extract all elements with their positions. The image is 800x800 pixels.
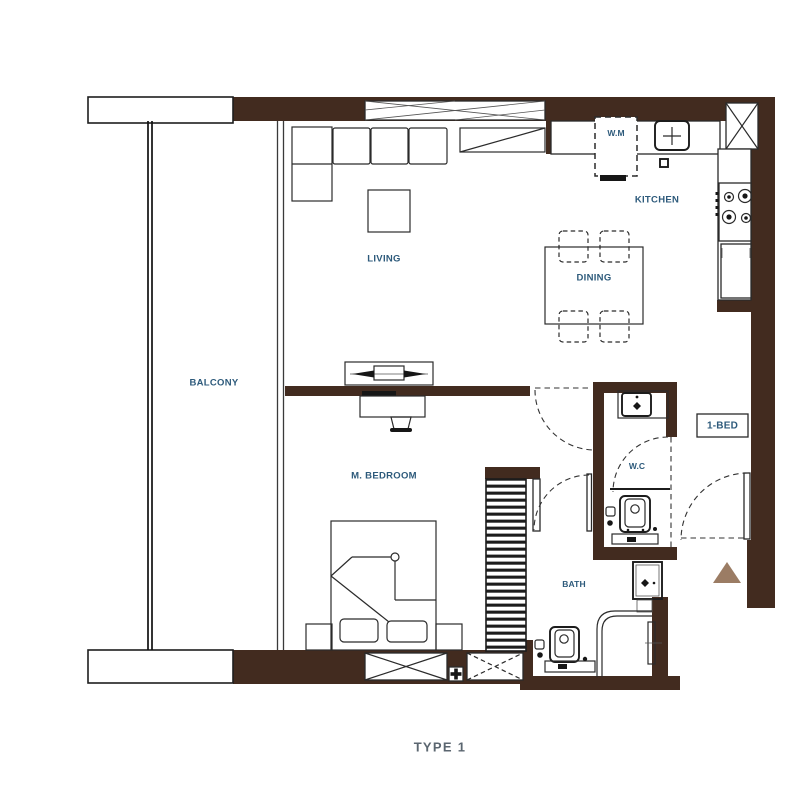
wall-right [751,121,775,540]
room-label-bath: BATH [562,579,585,589]
sideboard [460,128,545,152]
wall-right-lower [747,540,775,608]
stove [716,183,752,241]
entry-door [681,473,750,540]
window-bottom-solid [365,653,447,680]
shaft-box [726,103,758,149]
wc-vanity-sink [618,391,668,418]
room-label-living: LIVING [367,254,400,265]
room-label-balcony: BALCONY [189,378,238,389]
balcony-slab-bottom [88,650,233,683]
floor-plan: BALCONY LIVING KITCHEN DINING M. BEDROOM… [0,0,800,800]
unit-badge-label: 1-BED [707,420,738,431]
balcony-slab-top [88,97,233,123]
wall-kitchen-south-stub [717,300,775,312]
window-bottom-dashed [467,653,523,680]
balcony-rail [148,121,152,650]
floor-plan-drawing [0,0,800,800]
room-label-wc: W.C [629,461,645,471]
dining-chairs [559,231,629,342]
bedroom-door [535,388,595,450]
coffee-table [368,190,410,232]
wall-bath-north-stub [485,467,540,479]
bed [331,521,436,650]
wall-bedroom [285,386,530,396]
room-label-bedroom: M. BEDROOM [351,471,417,482]
plan-title: TYPE 1 [414,740,467,755]
nightstand-right [436,624,462,650]
nightstand-left [306,624,332,650]
fridge [721,244,751,298]
wc-toilet [606,496,658,544]
appliance-label-washing-machine: W.M [607,128,624,138]
storage-unit-top [365,101,545,120]
desk [360,391,425,432]
bath-toilet [535,627,595,672]
wardrobe [486,479,526,651]
room-label-dining: DINING [576,273,611,284]
bath-door [533,474,592,531]
balcony-glass-wall [278,121,284,650]
entry-marker-triangle [713,562,741,583]
column-cross-icon [449,667,463,681]
room-label-kitchen: KITCHEN [635,195,679,206]
tv-unit [345,362,433,385]
washing-machine-box [595,117,637,181]
wall-wc-bottom [593,547,677,560]
wall-wc-west [593,382,604,560]
